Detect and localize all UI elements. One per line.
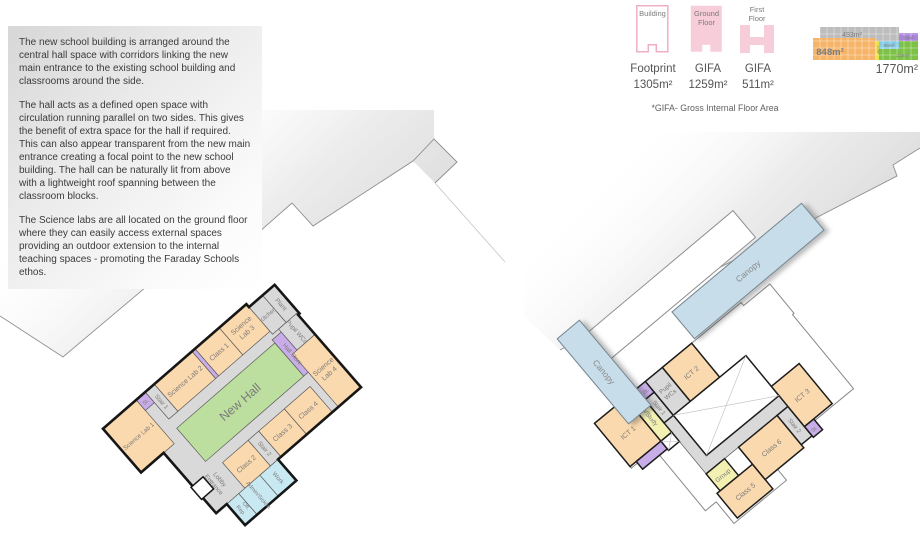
gifa-ground-label: GIFA — [678, 62, 738, 78]
ground-floor-icon: Ground Floor — [691, 6, 722, 52]
existing-building-left-fade-edge — [435, 183, 505, 262]
gifa-ground-area: 1259m² — [678, 78, 738, 94]
description-paragraph: The hall acts as a defined open space wi… — [19, 99, 251, 203]
gifa-first-column: GIFA 511m² — [730, 62, 786, 93]
gifa-footnote: *GIFA- Gross Internal Floor Area — [615, 103, 815, 113]
gifa-first-area: 511m² — [730, 78, 786, 94]
area-yellow-label: 47m² — [876, 46, 880, 55]
area-blue-label: 65m² — [884, 43, 895, 49]
area-gray-label: 493m² — [842, 32, 863, 39]
page: The new school building is arranged arou… — [0, 0, 920, 552]
building-footprint-icon: Building — [637, 6, 668, 52]
area-breakdown-diagram: 848m² 493m² 56m² 65m² 228m² 47m² — [808, 24, 920, 64]
ground-icon-label-line1: Ground — [694, 9, 719, 18]
description-paragraph: The new school building is arranged arou… — [19, 36, 251, 88]
footprint-label: Footprint — [622, 62, 684, 78]
area-green-label: 228m² — [896, 53, 910, 59]
first-icon-label-line1: First — [750, 5, 765, 14]
description-paragraph: The Science labs are all located on the … — [19, 214, 251, 279]
area-purple-label: 56m² — [903, 36, 914, 42]
area-orange-label: 848m² — [816, 47, 843, 58]
gifa-ground-column: GIFA 1259m² — [678, 62, 738, 93]
total-area-label: 1770m² — [838, 62, 918, 76]
footprint-area: 1305m² — [622, 78, 684, 94]
building-icon-label: Building — [639, 9, 666, 18]
first-floor-icon: First Floor — [740, 5, 774, 53]
first-icon-label-line2: Floor — [748, 14, 766, 23]
description-panel: The new school building is arranged arou… — [8, 26, 262, 289]
legend-icons: Building Ground Floor First Floor — [636, 5, 786, 63]
gifa-first-label: GIFA — [730, 62, 786, 78]
footprint-legend-column: Footprint 1305m² — [622, 62, 684, 93]
ground-icon-label-line2: Floor — [698, 18, 716, 27]
